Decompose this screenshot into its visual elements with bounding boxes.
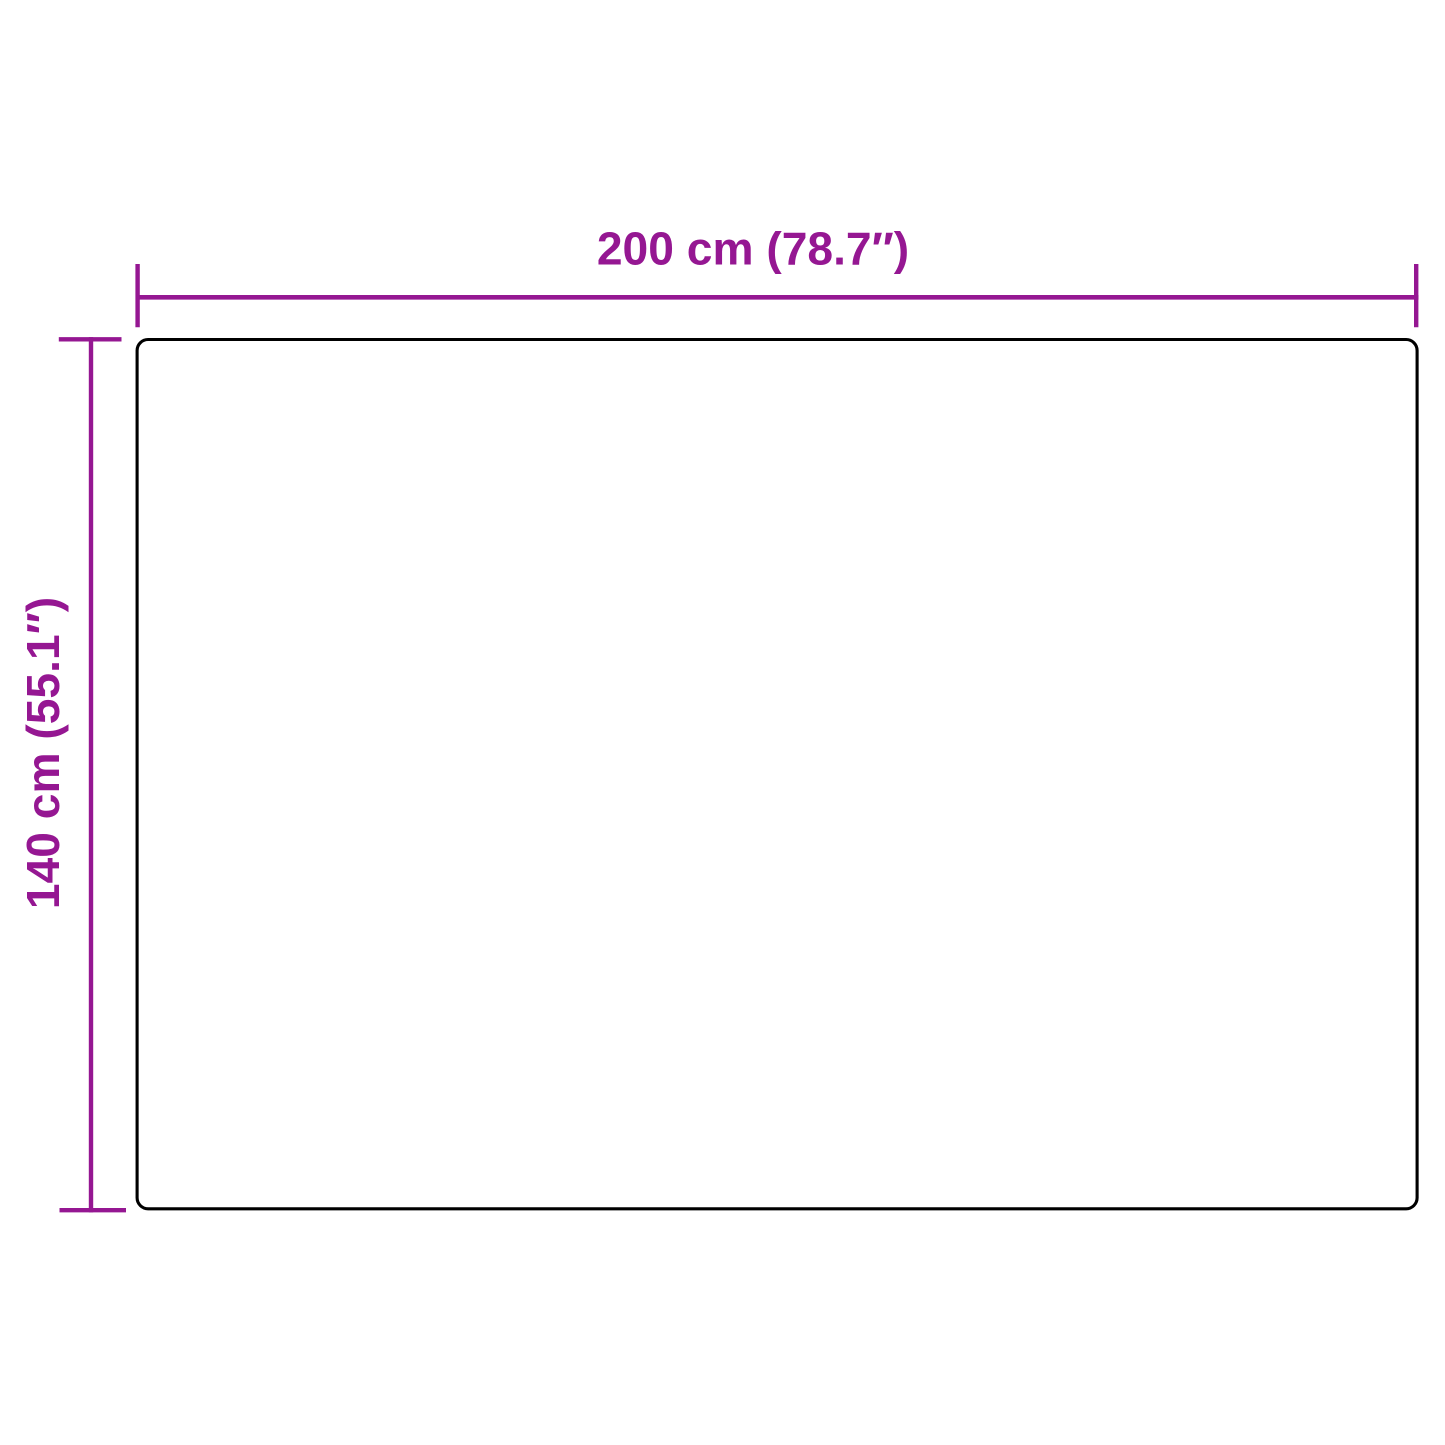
svg-text:200 cm (78.7″): 200 cm (78.7″) [597,223,909,275]
svg-text:140 cm (55.1″): 140 cm (55.1″) [17,597,69,909]
